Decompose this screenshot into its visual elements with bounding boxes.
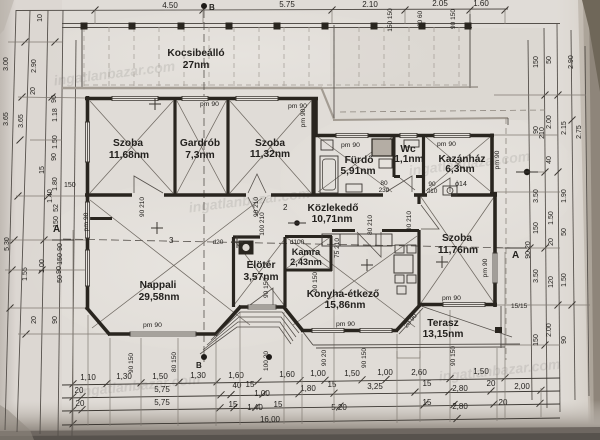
svg-text:2.05: 2.05 xyxy=(432,0,448,8)
svg-text:pm 90: pm 90 xyxy=(83,212,90,231)
svg-text:52: 52 xyxy=(53,204,60,212)
svg-text:3.65: 3.65 xyxy=(3,112,10,126)
svg-text:pm 90: pm 90 xyxy=(437,141,456,148)
svg-text:pm 90: pm 90 xyxy=(200,101,219,108)
svg-text:2.15: 2.15 xyxy=(561,121,568,135)
svg-text:20: 20 xyxy=(487,379,496,388)
svg-text:90 20: 90 20 xyxy=(321,349,328,366)
svg-text:6,3nm: 6,3nm xyxy=(445,164,474,175)
svg-text:5,75: 5,75 xyxy=(154,398,170,407)
svg-text:Szoba: Szoba xyxy=(442,233,472,244)
svg-text:80: 80 xyxy=(380,180,388,187)
svg-text:210: 210 xyxy=(427,188,438,195)
svg-text:20: 20 xyxy=(499,398,508,407)
svg-text:11,32nm: 11,32nm xyxy=(250,149,290,160)
svg-text:11,68nm: 11,68nm xyxy=(109,150,149,161)
svg-text:Elötér: Elötér xyxy=(247,260,276,271)
svg-text:d100: d100 xyxy=(290,239,305,246)
svg-text:15: 15 xyxy=(39,166,46,174)
svg-text:1.60: 1.60 xyxy=(473,0,489,8)
svg-text:pm 90: pm 90 xyxy=(494,150,501,169)
svg-text:2.00: 2.00 xyxy=(546,323,553,337)
svg-text:ϕ14: ϕ14 xyxy=(455,181,467,188)
svg-text:3,25: 3,25 xyxy=(367,382,383,391)
svg-text:150: 150 xyxy=(57,253,64,265)
svg-text:Nappali: Nappali xyxy=(140,280,177,291)
svg-text:2,80: 2,80 xyxy=(452,384,468,393)
svg-text:1.18: 1.18 xyxy=(52,108,59,122)
svg-text:5.30: 5.30 xyxy=(4,237,11,251)
svg-text:1.90: 1.90 xyxy=(561,189,568,203)
svg-text:Kocsibeálló: Kocsibeálló xyxy=(167,48,224,59)
svg-text:3.50: 3.50 xyxy=(533,269,540,283)
svg-text:7,3nm: 7,3nm xyxy=(185,150,214,161)
svg-text:150 150: 150 150 xyxy=(387,8,394,32)
svg-text:1.50: 1.50 xyxy=(52,135,59,149)
svg-text:Fürdő: Fürdő xyxy=(345,155,374,166)
svg-text:15: 15 xyxy=(423,379,432,388)
svg-text:120: 120 xyxy=(548,276,555,288)
svg-text:Gardrób: Gardrób xyxy=(180,138,220,149)
svg-text:3: 3 xyxy=(169,236,174,245)
svg-text:d20: d20 xyxy=(213,239,224,246)
svg-text:4.50: 4.50 xyxy=(162,1,178,10)
svg-text:20: 20 xyxy=(548,238,555,246)
svg-text:90 20: 90 20 xyxy=(525,241,532,259)
svg-text:15: 15 xyxy=(246,380,255,389)
svg-text:pm 90: pm 90 xyxy=(442,295,461,302)
svg-text:1,00: 1,00 xyxy=(254,389,270,398)
svg-text:100 20: 100 20 xyxy=(263,351,270,371)
svg-text:13,15nm: 13,15nm xyxy=(423,329,464,340)
svg-text:50: 50 xyxy=(561,228,568,236)
svg-text:210: 210 xyxy=(539,127,546,139)
svg-text:2,60: 2,60 xyxy=(411,368,427,377)
svg-text:5,20: 5,20 xyxy=(331,403,347,412)
svg-text:90: 90 xyxy=(428,181,436,188)
svg-text:150: 150 xyxy=(64,182,76,189)
svg-text:10,71nm: 10,71nm xyxy=(312,214,353,225)
svg-text:90: 90 xyxy=(57,243,64,251)
svg-text:1,40: 1,40 xyxy=(247,403,263,412)
svg-text:15: 15 xyxy=(423,398,432,407)
svg-text:1,00: 1,00 xyxy=(377,368,393,377)
svg-text:15: 15 xyxy=(274,400,283,409)
svg-text:29,58nm: 29,58nm xyxy=(139,292,180,303)
svg-text:2.00: 2.00 xyxy=(546,115,553,129)
svg-text:1.40: 1.40 xyxy=(47,189,54,203)
svg-text:1.50: 1.50 xyxy=(548,211,555,225)
svg-text:3,57nm: 3,57nm xyxy=(243,272,278,283)
svg-text:150: 150 xyxy=(533,334,540,346)
svg-text:3.00: 3.00 xyxy=(3,57,10,71)
svg-text:15: 15 xyxy=(229,400,238,409)
svg-text:pm 90: pm 90 xyxy=(336,321,355,328)
svg-text:2.10: 2.10 xyxy=(362,0,378,9)
svg-text:Terasz: Terasz xyxy=(427,318,459,329)
svg-text:20: 20 xyxy=(30,87,37,95)
svg-text:15/15: 15/15 xyxy=(511,303,528,310)
svg-text:10: 10 xyxy=(37,14,44,22)
svg-text:90 210: 90 210 xyxy=(139,197,146,217)
svg-text:15: 15 xyxy=(328,380,337,389)
svg-text:150: 150 xyxy=(533,56,540,68)
svg-text:90: 90 xyxy=(51,95,58,103)
svg-text:5,91nm: 5,91nm xyxy=(340,166,375,177)
svg-text:2.75: 2.75 xyxy=(576,125,583,139)
svg-text:1,80: 1,80 xyxy=(300,384,316,393)
svg-text:2,00: 2,00 xyxy=(514,382,530,391)
svg-text:150: 150 xyxy=(533,222,540,234)
svg-text:11,76nm: 11,76nm xyxy=(438,245,478,256)
svg-text:90: 90 xyxy=(52,316,59,324)
svg-text:1.80: 1.80 xyxy=(52,177,59,191)
svg-text:5.75: 5.75 xyxy=(279,0,295,9)
svg-text:40: 40 xyxy=(233,381,242,390)
svg-text:90: 90 xyxy=(51,153,58,161)
svg-text:3.50: 3.50 xyxy=(533,189,540,203)
svg-text:16,00: 16,00 xyxy=(260,415,281,424)
svg-text:27nm: 27nm xyxy=(183,60,210,71)
svg-text:75 210: 75 210 xyxy=(334,238,341,258)
svg-text:B: B xyxy=(209,3,215,12)
svg-text:90 150: 90 150 xyxy=(450,346,457,366)
svg-text:Konyha-étkező: Konyha-étkező xyxy=(307,289,379,300)
svg-text:Szoba: Szoba xyxy=(113,138,143,149)
svg-text:pm 90: pm 90 xyxy=(341,142,360,149)
svg-text:1,60: 1,60 xyxy=(228,371,244,380)
svg-text:90 150: 90 150 xyxy=(128,353,135,373)
svg-text:2,43nm: 2,43nm xyxy=(290,257,322,267)
svg-text:2.90: 2.90 xyxy=(568,55,575,69)
svg-text:pm 90: pm 90 xyxy=(482,258,489,277)
svg-text:15,86nm: 15,86nm xyxy=(325,300,366,311)
svg-text:1.00: 1.00 xyxy=(39,259,46,273)
svg-text:230: 230 xyxy=(379,187,390,194)
svg-text:1.50: 1.50 xyxy=(561,273,568,287)
svg-text:1,30: 1,30 xyxy=(190,371,206,380)
svg-text:80 150: 80 150 xyxy=(171,352,178,372)
svg-text:5,75: 5,75 xyxy=(154,385,170,394)
svg-text:1,50: 1,50 xyxy=(473,367,489,376)
svg-text:2: 2 xyxy=(283,203,288,212)
svg-text:20: 20 xyxy=(76,399,85,408)
svg-text:1,50: 1,50 xyxy=(344,369,360,378)
svg-text:20: 20 xyxy=(31,316,38,324)
svg-text:80 210: 80 210 xyxy=(367,215,374,235)
svg-text:pm 90: pm 90 xyxy=(300,108,307,127)
svg-text:50: 50 xyxy=(546,56,553,64)
svg-text:1,50: 1,50 xyxy=(152,372,168,381)
svg-text:1,60: 1,60 xyxy=(279,370,295,379)
svg-text:90: 90 xyxy=(56,266,63,274)
svg-text:90 150: 90 150 xyxy=(361,348,368,368)
svg-text:pm 90: pm 90 xyxy=(143,322,162,329)
svg-text:1,1nm: 1,1nm xyxy=(394,154,423,165)
svg-text:50: 50 xyxy=(57,275,64,283)
svg-text:1,00: 1,00 xyxy=(310,369,326,378)
svg-text:Szoba: Szoba xyxy=(255,138,285,149)
svg-text:20: 20 xyxy=(75,386,84,395)
svg-text:90: 90 xyxy=(561,336,568,344)
svg-text:40: 40 xyxy=(546,156,553,164)
svg-text:3.65: 3.65 xyxy=(18,114,25,128)
svg-text:B: B xyxy=(196,361,202,370)
svg-text:100 210: 100 210 xyxy=(259,212,266,236)
svg-text:Kamra: Kamra xyxy=(292,247,321,257)
svg-text:2,80: 2,80 xyxy=(452,402,468,411)
svg-text:90 210: 90 210 xyxy=(406,211,413,231)
svg-text:1.55: 1.55 xyxy=(22,267,29,281)
svg-text:2.90: 2.90 xyxy=(31,59,38,73)
svg-text:Közlekedő: Közlekedő xyxy=(308,203,359,214)
svg-text:A: A xyxy=(53,224,60,235)
svg-text:A: A xyxy=(512,250,519,261)
svg-text:90 150: 90 150 xyxy=(450,9,457,29)
